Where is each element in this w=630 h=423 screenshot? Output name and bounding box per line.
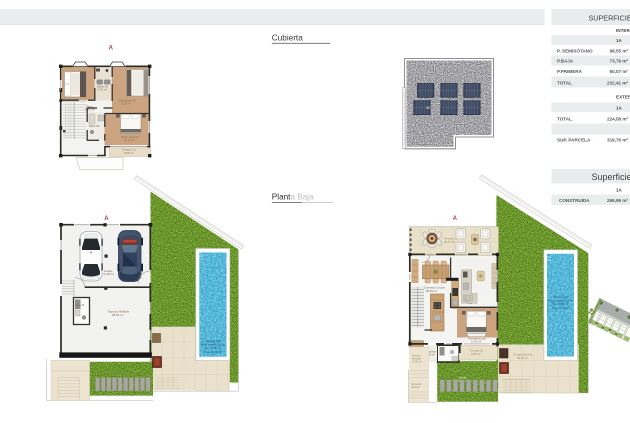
svg-text:Piscina 3x9: Piscina 3x9	[553, 295, 568, 299]
svg-text:224,58 m²: 224,58 m²	[607, 116, 628, 121]
svg-text:Sup. 10,50 m²: Sup. 10,50 m²	[204, 350, 221, 354]
svg-text:Vol. 27,80 m³: Vol. 27,80 m³	[552, 302, 568, 306]
svg-text:P.PRIMERA: P.PRIMERA	[557, 69, 583, 74]
svg-text:58,89 m²: 58,89 m²	[426, 289, 437, 293]
svg-text:41,82 m²: 41,82 m²	[103, 272, 114, 276]
svg-text:319,76 m²: 319,76 m²	[607, 138, 628, 143]
svg-text:TOTAL: TOTAL	[557, 116, 572, 121]
svg-text:3,85 m²: 3,85 m²	[471, 352, 481, 356]
svg-text:Piscina 3x9: Piscina 3x9	[206, 339, 221, 343]
svg-text:98,55 m²: 98,55 m²	[112, 313, 123, 317]
svg-text:A: A	[109, 46, 114, 52]
svg-text:98,55 m²: 98,55 m²	[610, 48, 629, 53]
svg-text:A: A	[104, 216, 109, 222]
svg-text:1A: 1A	[616, 106, 623, 111]
svg-text:INTERIORES: INTERIORES	[616, 28, 630, 33]
svg-text:60,07 m²: 60,07 m²	[610, 69, 629, 74]
svg-text:11,50 m²: 11,50 m²	[412, 361, 422, 364]
svg-text:Baño 05: Baño 05	[89, 124, 100, 128]
svg-text:9,20 m²: 9,20 m²	[121, 102, 131, 106]
svg-text:TOTAL: TOTAL	[557, 80, 572, 85]
svg-text:232,41 m²: 232,41 m²	[607, 80, 628, 85]
svg-text:EXTERIORES: EXTERIORES	[616, 94, 630, 99]
svg-text:A: A	[453, 216, 458, 222]
svg-text:269,95 m²: 269,95 m²	[607, 198, 628, 203]
svg-text:Cubierta: Cubierta	[272, 33, 303, 42]
svg-text:Sup. 10,50 m²: Sup. 10,50 m²	[552, 306, 569, 310]
svg-text:1A: 1A	[616, 38, 623, 43]
svg-text:P. SEMISÓTANO: P. SEMISÓTANO	[557, 46, 593, 53]
svg-text:Aseo 05: Aseo 05	[75, 304, 85, 307]
svg-text:Prof. media 1,30 m: Prof. media 1,30 m	[201, 343, 225, 347]
svg-text:CONSTRUIDA: CONSTRUIDA	[559, 198, 590, 203]
svg-text:59,05 m²: 59,05 m²	[517, 356, 528, 360]
svg-text:Prof. media 1,30 m: Prof. media 1,30 m	[549, 299, 573, 303]
svg-text:SUP. PARCELA: SUP. PARCELA	[557, 138, 591, 143]
svg-text:12,42 m²: 12,42 m²	[471, 339, 481, 343]
svg-text:28,67 m²: 28,67 m²	[444, 240, 455, 244]
svg-text:3,76 m²: 3,76 m²	[98, 88, 108, 92]
svg-text:SUPERFICIES: SUPERFICIES	[589, 14, 630, 23]
svg-text:Exterior: Exterior	[412, 386, 421, 389]
svg-text:10,75 m²: 10,75 m²	[124, 138, 135, 142]
svg-text:Vol. 27,80 m³: Vol. 27,80 m³	[205, 346, 221, 350]
svg-text:Planta Baja: Planta Baja	[272, 193, 314, 202]
svg-text:1A: 1A	[616, 188, 623, 193]
svg-text:6,89 m²: 6,89 m²	[124, 151, 134, 155]
svg-text:Superficies: Superficies	[592, 172, 630, 182]
svg-text:P.BAJA: P.BAJA	[557, 59, 574, 64]
svg-text:73,79 m²: 73,79 m²	[610, 59, 629, 64]
